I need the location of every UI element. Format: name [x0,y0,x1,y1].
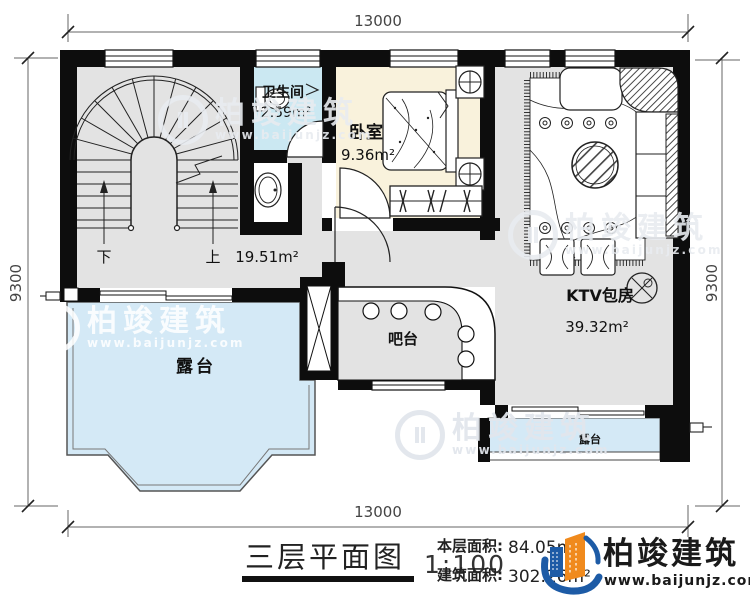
hall-area: 19.51m² [235,248,299,266]
sliding-door-leaf [578,411,644,415]
stairs-up-label: 上 [205,248,220,266]
bathroom-label: 卫生间 [262,84,304,101]
nightstand-lamp-icon [456,158,484,190]
shaft-column [300,277,338,380]
window-icon [390,50,458,67]
ktv-area: 39.32m² [565,318,629,336]
dim-bottom: 13000 [354,503,402,521]
plan-title: 三层平面图 [245,540,405,574]
sofa-back [666,114,678,236]
sliding-door-leaf [512,407,578,411]
bar-label: 吧台 [388,330,418,348]
faucet-icon [690,423,703,432]
title-block: 三层平面图 1:100 本层面积: 84.05m² 建筑面积: 302.26m²… [242,532,750,591]
sliding-door-leaf [166,296,232,300]
building-area-label: 建筑面积: [437,566,503,584]
brand-url: www.baijunjz.com [604,573,750,589]
bedroom-label: 卧室 [349,122,383,143]
floor-plan-page: 13000 13000 9300 9300 [0,0,750,600]
stool [540,239,574,275]
sink-icon [255,173,281,207]
window-icon [256,50,320,67]
window-icon [565,50,615,67]
dim-top: 13000 [354,12,402,30]
faucet-icon [46,292,60,300]
brand-name: 柏竣建筑 [603,536,739,572]
floor-plan-canvas: 13000 13000 9300 9300 [0,0,750,600]
bathroom-area: 2.59m² [261,105,311,121]
terrace-label: 露台 [176,356,216,377]
round-table [572,142,618,188]
dim-right: 9300 [703,264,721,302]
window-icon [505,50,550,67]
nightstand-lamp-icon [456,66,484,98]
floor-area-label: 本层面积: [437,537,503,555]
stairs-down-label: 下 [96,248,111,266]
terrace-small-label: 露台 [579,432,601,446]
ktv-label: KTV包房 [566,286,634,305]
stool [581,239,615,275]
window-icon [105,50,173,67]
bedroom-area: 9.36m² [341,146,395,164]
wardrobe [390,186,482,216]
sliding-door-leaf [100,291,166,295]
dim-left: 9300 [7,264,25,302]
title-underline [242,576,414,582]
